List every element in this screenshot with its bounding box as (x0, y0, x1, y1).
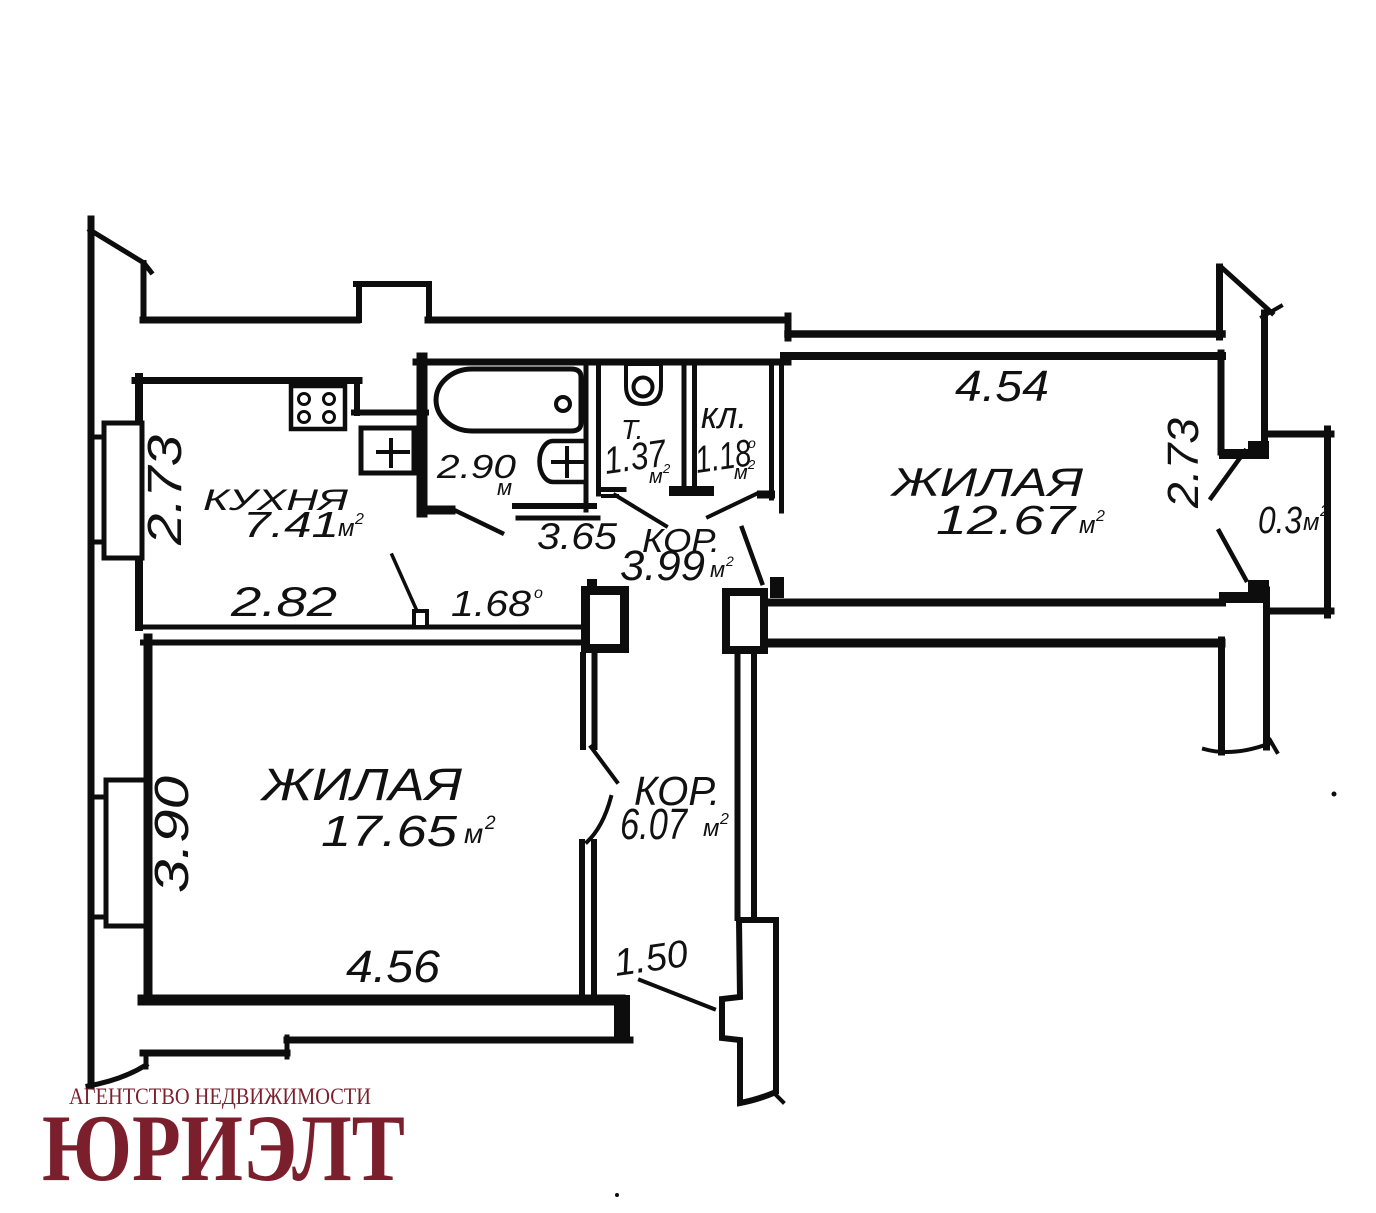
svg-text:3.99: 3.99 (620, 542, 705, 590)
svg-text:3.65: 3.65 (537, 516, 617, 557)
svg-text:17.65: 17.65 (321, 807, 458, 856)
svg-text:м: м (703, 815, 719, 842)
svg-text:2: 2 (1319, 503, 1329, 520)
svg-text:6.07: 6.07 (620, 800, 688, 849)
svg-text:2: 2 (354, 511, 364, 528)
svg-text:4.56: 4.56 (346, 941, 441, 992)
svg-text:2: 2 (1095, 508, 1105, 525)
svg-text:1.68: 1.68 (451, 583, 531, 624)
svg-text:м: м (497, 475, 512, 500)
svg-text:1.50: 1.50 (611, 933, 690, 985)
svg-text:3.90: 3.90 (146, 776, 199, 893)
svg-text:2.73: 2.73 (139, 435, 192, 547)
svg-text:м: м (1303, 509, 1319, 536)
svg-text:2: 2 (725, 553, 734, 569)
svg-text:кл.: кл. (701, 395, 747, 437)
svg-text:м: м (649, 466, 663, 488)
svg-text:o: o (534, 585, 543, 602)
svg-text:ЖИЛАЯ: ЖИЛАЯ (260, 759, 463, 810)
svg-text:4.54: 4.54 (955, 362, 1049, 411)
svg-text:12.67: 12.67 (936, 497, 1078, 543)
svg-text:м: м (710, 557, 725, 582)
svg-text:ЮРИЭЛТ: ЮРИЭЛТ (42, 1095, 405, 1201)
svg-text:м: м (1079, 512, 1095, 539)
svg-text:2: 2 (484, 813, 496, 834)
svg-text:2.82: 2.82 (230, 578, 337, 625)
svg-text:0.3: 0.3 (1258, 500, 1302, 542)
svg-text:7.41: 7.41 (243, 504, 339, 545)
svg-text:2: 2 (719, 811, 729, 828)
svg-text:2: 2 (747, 457, 756, 472)
svg-text:o: o (748, 435, 756, 451)
svg-text:2.73: 2.73 (1159, 417, 1208, 509)
svg-text:м: м (338, 515, 354, 542)
svg-text:м: м (464, 818, 483, 849)
svg-text:м: м (734, 462, 748, 484)
svg-text:2: 2 (662, 461, 671, 476)
